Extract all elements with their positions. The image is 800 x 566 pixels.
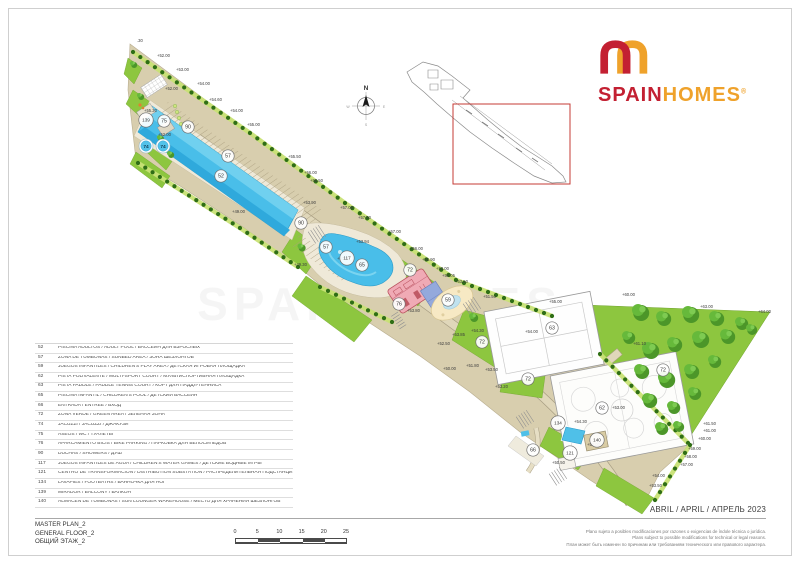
key-plan-inset xyxy=(407,62,570,184)
legend-row: 57ZONA DE TUMBONAS / SUNBED AREA / ЗОНА … xyxy=(35,354,293,364)
elevation-label: +53.90 xyxy=(303,200,317,205)
legend-row: 75ASEOS / WC / ТУАЛЕТЫ xyxy=(35,431,293,441)
svg-text:72: 72 xyxy=(525,377,531,383)
legend-row-description: PISTA PADDLE / PADDLE TENNIS COURT / КОР… xyxy=(58,384,293,389)
plan-number-badge: 72 xyxy=(476,336,488,348)
legend-row-description: JACUZZI / JACUZZI / ДЖАКУЗИ xyxy=(58,423,293,428)
logo-wordmark: SPAINHOMES® xyxy=(598,84,776,107)
elevation-label: +52.00 xyxy=(157,53,171,58)
elevation-label: +55.20 xyxy=(144,108,158,113)
legend-row-description: MIRADOR / BALCONY / БАЛКОН xyxy=(58,491,293,496)
plan-number-badge: 57 xyxy=(320,241,332,253)
elevation-label: +57.00 xyxy=(388,229,402,234)
svg-text:121: 121 xyxy=(566,451,574,456)
elevation-label: +51.80 xyxy=(466,363,480,368)
svg-text:N: N xyxy=(364,85,369,92)
legend-row-description: PISCINA INFANTIL / CHILDREN'S POOL / ДЕТ… xyxy=(58,394,293,399)
plan-date: ABRIL / APRIL / АПРЕЛЬ 2023 xyxy=(466,505,766,514)
elevation-label: +53.50 xyxy=(649,483,663,488)
plan-number-badge: 90 xyxy=(295,217,307,229)
elevation-label: +61.00 xyxy=(703,428,717,433)
plan-number-badge: 134 xyxy=(551,416,565,430)
elevation-label: +53.50 xyxy=(485,367,499,372)
legend-row-number: 140 xyxy=(35,500,58,505)
legend-row-number: 90 xyxy=(35,452,58,457)
elevation-label: +54.30 xyxy=(574,419,588,424)
scale-bar-segment xyxy=(303,539,325,542)
disclaimer-ru: План может быть изменен по причинам или … xyxy=(366,542,766,548)
legend-row-description: ZONA VERDE / GREEN AREA / ЗЕЛЕНАЯ ЗОНА xyxy=(58,413,293,418)
svg-text:134: 134 xyxy=(554,421,562,426)
elevation-label: +63.00 xyxy=(700,304,714,309)
scale-bar-segment xyxy=(258,539,280,542)
elevation-label: +52.00 xyxy=(165,86,179,91)
legend-row-description: ENTRADA / ENTRÉE / ВХОД xyxy=(58,404,293,409)
svg-text:66: 66 xyxy=(530,448,536,454)
elevation-label: +54.00 xyxy=(230,108,244,113)
legend-row-description: ALMACÉN DE TUMBONAS / SUN LOUNGER WAREHO… xyxy=(58,500,293,505)
legend-row-description: PISCINA ADULTOS / ADULT POOL / БАССЕЙН Д… xyxy=(58,346,293,351)
legend-table: 52PISCINA ADULTOS / ADULT POOL / БАССЕЙН… xyxy=(35,343,293,508)
elevation-label: +56.00 xyxy=(304,170,318,175)
logo-arches-icon xyxy=(600,40,656,75)
scale-tick-label: 5 xyxy=(256,529,259,535)
legend-row-description: ASEOS / WC / ТУАЛЕТЫ xyxy=(58,433,293,438)
legend-row: 59JUEGOS INFANTILES / CHILDREN'S PLAY AR… xyxy=(35,363,293,373)
legend-row-number: 76 xyxy=(35,442,58,447)
plan-number-badge: 72 xyxy=(404,264,416,276)
svg-text:S: S xyxy=(365,123,368,127)
svg-text:117: 117 xyxy=(343,256,351,261)
svg-text:59: 59 xyxy=(445,298,451,304)
title-line-ru: ОБЩИЙ ЭТАЖ_2 xyxy=(35,538,94,547)
plan-number-badge: 57 xyxy=(222,150,234,162)
logo-homes: HOMES xyxy=(663,84,741,106)
elevation-label: +61.50 xyxy=(703,421,717,426)
legend-row: 134LAVAPIES / FOOTBATHS / ВАННОЧКА ДЛЯ Н… xyxy=(35,479,293,489)
legend-row-description: LAVAPIES / FOOTBATHS / ВАННОЧКА ДЛЯ НОГ xyxy=(58,481,293,486)
legend-row-number: 66 xyxy=(35,404,58,409)
elevation-label: +53.85 xyxy=(452,332,466,337)
plan-number-badge: 90 xyxy=(182,121,194,133)
scale-tick-label: 25 xyxy=(343,529,349,535)
svg-text:72: 72 xyxy=(660,368,666,374)
legend-row-number: 117 xyxy=(35,462,58,467)
elevation-label: +59.00 xyxy=(688,446,702,451)
legend-row: 72ZONA VERDE / GREEN AREA / ЗЕЛЕНАЯ ЗОНА xyxy=(35,411,293,421)
elevation-label: +54.60 xyxy=(209,97,223,102)
legend-row-number: 59 xyxy=(35,365,58,370)
legend-row-number: 52 xyxy=(35,346,58,351)
elevation-label: +53.94 xyxy=(356,239,370,244)
legend-row-description: DUCHAS / SHOWERS / ДУШ xyxy=(58,452,293,457)
elevation-label: +64.00 xyxy=(758,309,772,314)
legend-row-number: 63 xyxy=(35,384,58,389)
legend-row-number: 139 xyxy=(35,491,58,496)
plan-number-badge: 139 xyxy=(139,113,153,127)
legend-row-number: 57 xyxy=(35,356,58,361)
elevation-label: +53.00 xyxy=(612,405,626,410)
svg-text:62: 62 xyxy=(599,406,605,412)
plan-number-badge: 117 xyxy=(340,251,354,265)
plan-number-badge: 59 xyxy=(442,294,454,306)
footer-divider-line xyxy=(35,518,766,519)
scale-tick-label: 0 xyxy=(234,529,237,535)
elevation-label: +54.30 xyxy=(471,328,485,333)
plan-number-badge: 65 xyxy=(356,259,368,271)
legend-row: 74JACUZZI / JACUZZI / ДЖАКУЗИ xyxy=(35,421,293,431)
elevation-label: +54.05 xyxy=(442,273,456,278)
svg-text:72: 72 xyxy=(407,268,413,274)
elevation-label: +53.80 xyxy=(407,308,421,313)
legend-row-number: 65 xyxy=(35,394,58,399)
master-plan-page: SPAINHOMES xyxy=(0,0,800,566)
scale-bar-ticks: 0510152025 xyxy=(235,529,347,536)
plan-number-badge: 62 xyxy=(596,402,608,414)
plan-number-badge: 72 xyxy=(522,373,534,385)
elevation-label: .30 xyxy=(137,38,143,43)
legend-row-number: 75 xyxy=(35,433,58,438)
elevation-label: +57.50 xyxy=(358,215,372,220)
scale-bar-segment xyxy=(280,542,302,545)
elevation-label: +55.00 xyxy=(247,122,261,127)
elevation-label: +56.00 xyxy=(410,246,424,251)
legend-row: 117JUEGOS INFANTILES DE AGUA / CHILDREN'… xyxy=(35,460,293,470)
elevation-label: +58.00 xyxy=(684,454,698,459)
legend-row: 140ALMACÉN DE TUMBONAS / SUN LOUNGER WAR… xyxy=(35,498,293,508)
svg-text:74: 74 xyxy=(160,144,166,150)
title-block: MASTER PLAN_2 GENERAL FLOOR_2 ОБЩИЙ ЭТАЖ… xyxy=(35,521,94,547)
plan-number-badge: 74 xyxy=(139,139,153,153)
scale-bar-segments xyxy=(235,538,347,544)
elevation-label: +54.00 xyxy=(652,473,666,478)
legend-row-number: 74 xyxy=(35,423,58,428)
svg-text:E: E xyxy=(383,105,386,109)
elevation-label: +53.20 xyxy=(495,384,509,389)
plan-number-badge: 76 xyxy=(393,298,405,310)
legend-row-number: 134 xyxy=(35,481,58,486)
legend-row-description: JUEGOS INFANTILES DE AGUA / CHILDREN'S W… xyxy=(58,462,293,467)
legend-row-description: ZONA DE TUMBONAS / SUNBED AREA / ЗОНА ШЕ… xyxy=(58,356,293,361)
scale-tick-label: 10 xyxy=(276,529,282,535)
legend-row-description: APARCAMIENTO BICIS / BIKE PARKING / ПАРК… xyxy=(58,442,293,447)
spainhomes-logo: SPAINHOMES® xyxy=(598,38,778,108)
elevation-label: +60.00 xyxy=(698,436,712,441)
svg-text:65: 65 xyxy=(359,263,365,269)
elevation-label: +50.50 xyxy=(552,460,566,465)
elevation-label: +55.90 xyxy=(422,257,436,262)
title-line-en2: GENERAL FLOOR_2 xyxy=(35,530,94,539)
elevation-label: +61.10 xyxy=(633,341,647,346)
legend-row-number: 72 xyxy=(35,413,58,418)
legend-row: 76APARCAMIENTO BICIS / BIKE PARKING / ПА… xyxy=(35,440,293,450)
legend-row: 65PISCINA INFANTIL / CHILDREN'S POOL / Д… xyxy=(35,392,293,402)
plan-number-badge: 52 xyxy=(215,170,227,182)
scale-bar-segment xyxy=(325,542,347,545)
legend-row: 63PISTA PADDLE / PADDLE TENNIS COURT / К… xyxy=(35,383,293,393)
scale-tick-label: 15 xyxy=(299,529,305,535)
registered-mark: ® xyxy=(741,88,746,95)
elevation-label: +50.00 xyxy=(443,366,457,371)
north-compass-icon: N W E S xyxy=(346,85,385,127)
legend-row: 66ENTRADA / ENTRÉE / ВХОД xyxy=(35,402,293,412)
scale-bar: 0510152025 xyxy=(235,529,347,547)
legend-row-description: CENTRO DE TRANSFORMACIÓN / DISTRIBUTION … xyxy=(58,471,293,476)
elevation-label: +57.00 xyxy=(680,462,694,467)
elevation-label: +52.00 xyxy=(158,132,172,137)
svg-text:63: 63 xyxy=(549,326,555,332)
plan-number-badge: 72 xyxy=(657,364,669,376)
svg-text:52: 52 xyxy=(218,174,224,180)
legend-row-description: PISTA POLIVALENTE / MULTI-SPORT COURT / … xyxy=(58,375,293,380)
legend-row: 139MIRADOR / BALCONY / БАЛКОН xyxy=(35,489,293,499)
svg-text:57: 57 xyxy=(225,154,231,160)
elevation-label: +55.50 xyxy=(288,154,302,159)
elevation-label: +56.50 xyxy=(310,178,324,183)
elevation-label: +57.00 xyxy=(340,205,354,210)
svg-text:139: 139 xyxy=(142,118,150,123)
plan-number-badge: 63 xyxy=(546,322,558,334)
elevation-label: +54.00 xyxy=(197,81,211,86)
legend-row: 121CENTRO DE TRANSFORMACIÓN / DISTRIBUTI… xyxy=(35,469,293,479)
elevation-label: +54.00 xyxy=(525,329,539,334)
plan-number-badge: 140 xyxy=(590,433,604,447)
legend-row: 90DUCHAS / SHOWERS / ДУШ xyxy=(35,450,293,460)
elevation-label: +49.30 xyxy=(294,262,308,267)
svg-text:90: 90 xyxy=(298,221,304,227)
svg-text:W: W xyxy=(346,105,350,109)
svg-text:90: 90 xyxy=(185,125,191,131)
elevation-label: +60.00 xyxy=(622,292,636,297)
plan-number-badge: 75 xyxy=(158,115,170,127)
elevation-label: +51.50 xyxy=(483,294,497,299)
plan-number-badge: 121 xyxy=(563,446,577,460)
elevation-label: +55.00 xyxy=(549,299,563,304)
legend-row: 62PISTA POLIVALENTE / MULTI-SPORT COURT … xyxy=(35,373,293,383)
svg-text:76: 76 xyxy=(396,302,402,308)
scale-bar-segment xyxy=(236,542,258,545)
plan-number-badge: 66 xyxy=(527,444,539,456)
legend-row-number: 62 xyxy=(35,375,58,380)
logo-spain: SPAIN xyxy=(598,84,663,106)
key-plan-highlight-rect xyxy=(453,104,570,184)
svg-text:74: 74 xyxy=(143,144,149,150)
legend-row-number: 121 xyxy=(35,471,58,476)
elevation-label: +52.50 xyxy=(437,341,451,346)
elevation-label: +53.00 xyxy=(176,67,190,72)
elevation-label: +53.00 xyxy=(436,266,450,271)
disclaimer-text: Plano sujeto a posibles modificaciones p… xyxy=(366,529,766,548)
footbath-134 xyxy=(562,427,585,444)
svg-text:72: 72 xyxy=(479,340,485,346)
legend-row-description: JUEGOS INFANTILES / CHILDREN'S PLAY AREA… xyxy=(58,365,293,370)
svg-text:140: 140 xyxy=(593,438,601,443)
svg-text:75: 75 xyxy=(161,119,167,125)
plan-number-badge: 74 xyxy=(156,139,170,153)
elevation-label: +49.00 xyxy=(232,209,246,214)
scale-tick-label: 20 xyxy=(321,529,327,535)
title-line-en: MASTER PLAN_2 xyxy=(35,521,94,530)
elevation-label: +53.50 xyxy=(455,279,469,284)
legend-row: 52PISCINA ADULTOS / ADULT POOL / БАССЕЙН… xyxy=(35,344,293,354)
svg-text:57: 57 xyxy=(323,245,329,251)
